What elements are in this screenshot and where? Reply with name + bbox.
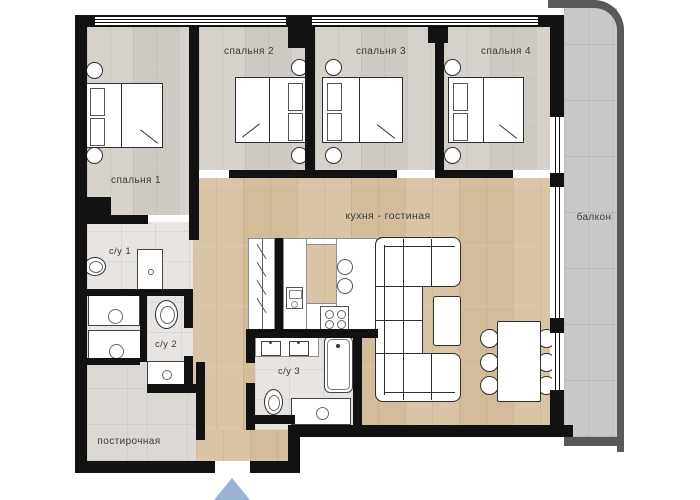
blanket-edge [359, 78, 360, 142]
wall-bottom-right [288, 425, 573, 437]
wall-bath3-niche [246, 415, 295, 424]
basin-bowl [160, 306, 175, 324]
room-label-bathroom2: с/у 2 [155, 339, 177, 350]
sofa-seam [385, 392, 455, 393]
burner [325, 320, 334, 329]
room-label-bedroom3: спальня 3 [356, 46, 406, 57]
floor-plan: спальня 1 спальня 2 спальня 3 спальня 4 … [0, 0, 700, 500]
sofa-seam [376, 320, 422, 321]
washing-machine [291, 398, 351, 425]
sofa-top-arm [375, 237, 461, 287]
coffee-table [433, 296, 461, 346]
wall-bath2-bottom [147, 384, 196, 393]
wall-bedroom1-right [189, 27, 199, 240]
wall-block-bedroom2-3 [288, 27, 310, 48]
burner [337, 320, 346, 329]
nightstand [86, 147, 103, 164]
sofa-bottom-arm [375, 353, 461, 402]
pillow [90, 88, 105, 116]
blanket-edge [121, 84, 122, 147]
nightstand [86, 62, 103, 79]
pillow [288, 83, 303, 111]
wall-utility-vertical [140, 292, 147, 362]
shower-drain [148, 269, 154, 275]
laundry-floor-b [147, 393, 196, 461]
wall-bath3-left-a [246, 338, 255, 363]
wall-bedroom3-4 [435, 27, 444, 178]
wall-laundry-top [87, 358, 140, 365]
wall-hall-left-a [184, 296, 193, 328]
dryer-door [109, 344, 124, 359]
faucet-dot [269, 341, 272, 344]
pillow [288, 113, 303, 141]
sofa-seam [385, 246, 455, 247]
room-label-balcony: балкон [577, 212, 612, 223]
vanity-sink [289, 341, 309, 356]
dryer-box [88, 330, 143, 361]
wall-bedroom-band-a [229, 170, 397, 178]
toilet [264, 389, 283, 415]
wall-wardrobe-kitchen [275, 238, 283, 330]
cabinet-sink [147, 361, 185, 385]
pillow [327, 113, 342, 141]
kitchen-sink-bowl [337, 259, 353, 275]
entrance-arrow-icon [214, 478, 250, 500]
room-label-bedroom1: спальня 1 [111, 175, 161, 186]
pillow [453, 113, 468, 141]
blanket-edge [269, 78, 270, 142]
wall-bedroom-band-b [443, 170, 513, 178]
dining-table [497, 321, 541, 402]
wardrobe [248, 238, 275, 330]
kitchen-counter-top [306, 238, 337, 245]
coffee-machine-icon [286, 287, 303, 309]
room-label-bathroom3: с/у 3 [278, 366, 300, 377]
stove [320, 306, 349, 330]
window-balcony-1 [552, 117, 563, 173]
blanket-edge [483, 78, 484, 142]
washer-door [108, 309, 123, 324]
blanket-fold [242, 123, 260, 137]
sofa-seam [431, 354, 432, 400]
blanket-fold [499, 124, 517, 138]
room-label-bathroom1: с/у 1 [109, 246, 131, 257]
room-label-bedroom2: спальня 2 [224, 46, 274, 57]
wall-bath3-right [353, 333, 362, 425]
hallway-floor [196, 430, 288, 461]
wall-block-bedroom1 [87, 197, 111, 224]
balcony-outer-wall-bottom [564, 437, 624, 446]
pillow [90, 118, 105, 146]
nightstand [444, 147, 461, 164]
pillow [327, 83, 342, 111]
sink-basin [84, 257, 106, 276]
window-balcony-2 [552, 187, 563, 318]
wall-bottom-left [75, 461, 215, 473]
nightstand [444, 59, 461, 76]
basin-bowl [89, 261, 103, 273]
faucet-dot [297, 341, 300, 344]
burner [325, 310, 334, 319]
room-label-bedroom4: спальня 4 [481, 46, 531, 57]
pillow [453, 83, 468, 111]
wall-laundry-right [196, 362, 205, 440]
kitchen-sink-bowl [337, 278, 353, 294]
sink-basin [155, 300, 178, 329]
nightstand [325, 147, 342, 164]
washer-box [88, 295, 140, 326]
window-balcony-3 [552, 333, 563, 390]
blanket-fold [377, 124, 395, 138]
cabinet-knob [162, 370, 172, 380]
bathtub-drain [336, 344, 340, 348]
washer-door [316, 407, 329, 420]
appliance-knob [291, 301, 298, 308]
bathtub [324, 336, 353, 393]
bed-double-1 [85, 83, 163, 148]
toilet-bowl [268, 395, 280, 411]
shower-cabin [137, 249, 163, 293]
room-label-laundry: постирочная [97, 436, 160, 447]
vanity-sink [261, 341, 281, 356]
blanket-fold [140, 129, 158, 143]
appliance-detail [289, 290, 302, 299]
wall-block-bedroom3-4 [428, 27, 448, 43]
kitchen-counter-left [283, 238, 307, 330]
wall-bedroom2-3 [305, 27, 315, 178]
bed-double-3 [322, 77, 403, 143]
room-label-kitchen-living: кухня - гостиная [345, 210, 430, 222]
wall-left [75, 15, 87, 473]
window-top-left [95, 17, 286, 25]
window-top-right [312, 17, 538, 25]
nightstand [325, 59, 342, 76]
bed-double-4 [448, 77, 524, 143]
vanity-counter [255, 337, 319, 357]
bed-double-2 [235, 77, 306, 143]
burner [337, 310, 346, 319]
sofa-seam [431, 239, 432, 286]
